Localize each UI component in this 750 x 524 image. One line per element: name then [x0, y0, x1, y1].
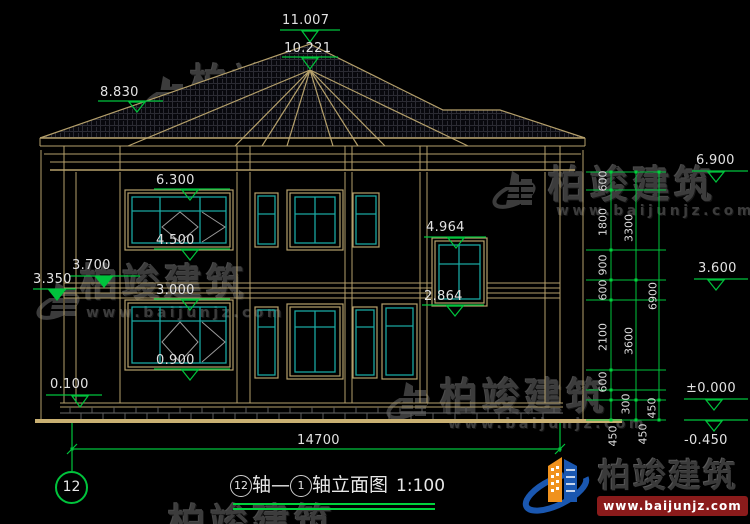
site-logo-text: 柏竣建筑: [598, 458, 738, 494]
level-label-floor2-right: 3.600: [698, 262, 737, 275]
dim-label-300: 300: [621, 394, 632, 415]
title-scale: 1:100: [396, 476, 445, 496]
dim-label-600: 600: [598, 372, 609, 393]
dim-label-600: 600: [598, 280, 609, 301]
plinth: [60, 403, 563, 419]
title-axis-joint: 轴—: [252, 474, 290, 496]
dim-label-900: 900: [598, 255, 609, 276]
title-underline: [233, 503, 435, 505]
title-axis-bubble-end: 1: [290, 475, 312, 497]
elevation-drawing: [0, 0, 750, 524]
site-logo-url: www.baijunjz.com: [597, 496, 748, 516]
title-underline: [233, 508, 435, 510]
level-label-plinth-top: 0.100: [50, 378, 89, 391]
level-label-bay-ridge: 10.221: [284, 42, 331, 55]
level-label-stair-win-head: 4.964: [426, 221, 465, 234]
level-label-stair-win-sill: 2.864: [424, 290, 463, 303]
axis-bubble-12: 12: [55, 471, 88, 504]
level-label-porch-beam: 3.700: [72, 259, 111, 272]
eave-cornice: [40, 138, 585, 170]
dim-label-600: 600: [598, 171, 609, 192]
level-label-porch-soffit: 3.350: [33, 273, 72, 286]
level-label-ground-zero: ±0.000: [686, 382, 736, 395]
cad-elevation-screenshot: 柏竣建筑 www.baijunjz.com 柏竣建筑 www.baijunjz.…: [0, 0, 750, 524]
dim-label-450: 450: [647, 398, 658, 419]
level-label-win1-head: 3.000: [156, 284, 195, 297]
dim-label-total-width: 14700: [297, 434, 340, 447]
site-logo-icon: [520, 448, 600, 522]
level-label-win1-sill: 0.900: [156, 354, 195, 367]
level-label-site-ground: -0.450: [684, 434, 728, 447]
dim-label-6900: 6900: [648, 282, 659, 310]
level-label-ridge-top: 11.007: [282, 14, 329, 27]
level-label-win2-head: 6.300: [156, 174, 195, 187]
level-label-roof-left: 8.830: [100, 86, 139, 99]
level-label-eave-right: 6.900: [696, 154, 735, 167]
ground-line: [35, 419, 622, 423]
dim-label-2100: 2100: [598, 323, 609, 351]
dim-label-3300: 3300: [624, 214, 635, 242]
level-label-win2-sill: 4.500: [156, 234, 195, 247]
title-axis-bubble-start: 12: [230, 475, 252, 497]
title-suffix: 轴立面图: [312, 474, 388, 496]
dim-label-450: 450: [608, 426, 619, 447]
dim-label-450: 450: [638, 424, 649, 445]
dim-label-1800: 1800: [598, 208, 609, 236]
dim-label-3600: 3600: [624, 327, 635, 355]
drawing-title: 12轴—1轴立面图1:100: [230, 472, 445, 499]
